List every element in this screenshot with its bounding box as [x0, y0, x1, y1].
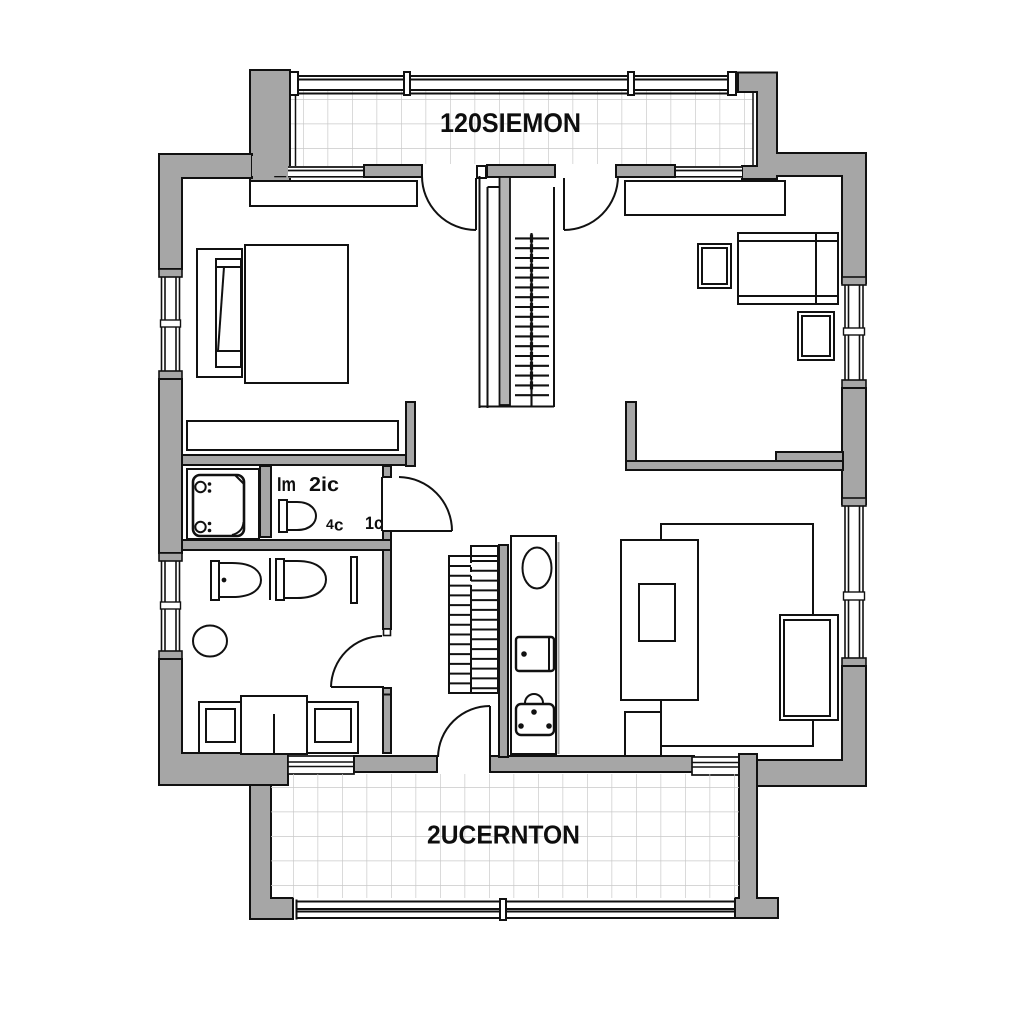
svg-text:Im: Im [277, 474, 296, 496]
svg-text:1c: 1c [365, 513, 383, 533]
svg-text:2UCERNTON: 2UCERNTON [427, 820, 580, 850]
svg-text:2ic: 2ic [309, 474, 339, 496]
svg-text:4: 4 [326, 516, 334, 532]
svg-text:120SIEMON: 120SIEMON [440, 108, 581, 138]
svg-text:c: c [334, 516, 343, 535]
